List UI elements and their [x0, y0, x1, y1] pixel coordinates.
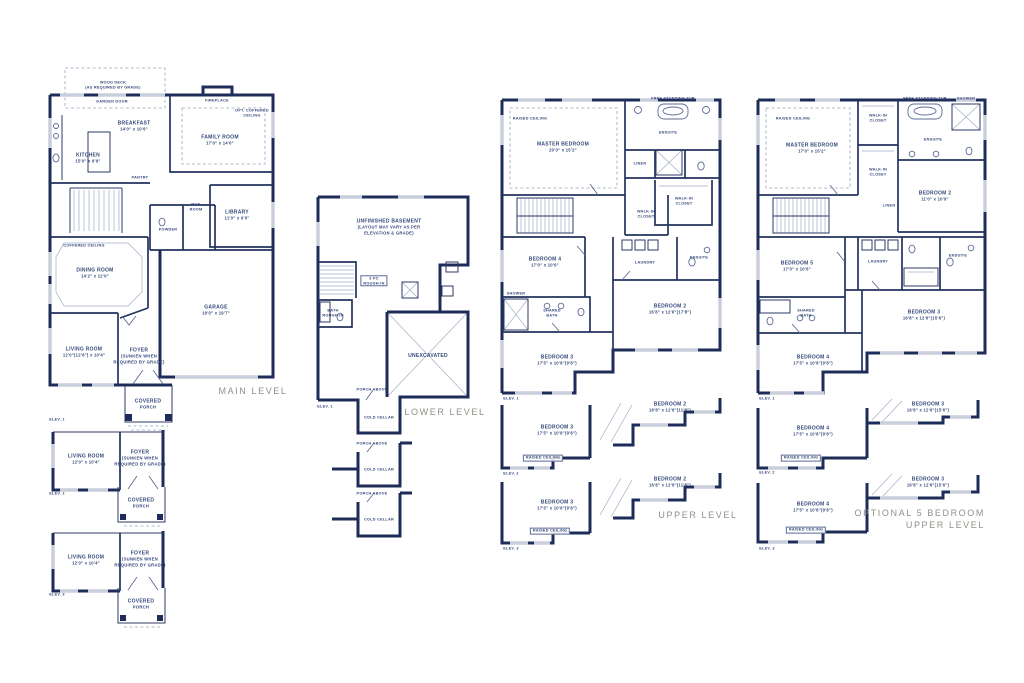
main-alt3-room-covered-porch: COVEREDPORCH — [128, 598, 154, 610]
optional-room-bedroom-3: BEDROOM 316'8" x 12'6"(15'6") — [903, 309, 945, 321]
optional-room-bedroom-5: BEDROOM 517'0" x 10'6" — [781, 260, 814, 272]
optional-level-title: OPTIONAL 5 BEDROOM UPPER LEVEL — [855, 508, 986, 531]
upper-upper-elevation-label-3: ELEV. 3 — [503, 547, 519, 552]
main-fireplace-note: FIREPLACE — [205, 99, 229, 104]
upper-alt2-room-bedroom-2: BEDROOM 216'8" x 12'6"(11'8") — [649, 401, 691, 413]
main-room-library: LIBRARY11'0" x 9'0" — [224, 209, 249, 221]
lower-room-cold-cellar-3: COLD CELLAR — [364, 518, 394, 523]
optional-room-laundry: LAUNDRY — [868, 260, 888, 265]
lower-room-unfinished-basement: UNFINISHED BASEMENT(LAYOUT MAY VARY AS P… — [357, 219, 422, 236]
optional-optional-elevation-label-3: ELEV. 3 — [759, 547, 775, 552]
optional-shower-note: SHOWER — [957, 97, 976, 102]
optional-optional-elevation-label-1: ELEV. 1 — [759, 397, 775, 402]
upper-raised-ceiling-note: RAISED CEILING — [513, 117, 547, 122]
main-room-family: FAMILY ROOM17'0" x 14'0" — [201, 134, 238, 146]
main-room-breakfast: BREAKFAST14'0" x 10'6" — [118, 120, 151, 132]
optional-alt3-raised-ceiling-note: RAISED CEILING — [786, 527, 826, 534]
upper-room-shared-bath: SHAREDBATH — [543, 308, 561, 317]
upper-shower-note: SHOWER — [507, 292, 526, 297]
main-room-living: LIVING ROOM12'0"(12'6") x 10'4" — [63, 346, 105, 358]
optional-room-shared-bath: SHAREDBATH — [797, 308, 815, 317]
upper-room-bedroom-4: BEDROOM 417'0" x 10'6" — [529, 256, 562, 268]
upper-room-bedroom-3: BEDROOM 317'5" x 10'8"(9'8") — [537, 354, 577, 366]
lower-level-title: LOWER LEVEL — [404, 407, 485, 419]
upper-level-title: UPPER LEVEL — [658, 510, 737, 522]
upper-alt3-raised-ceiling-note: RAISED CEILING — [530, 528, 570, 535]
upper-room-walk-in-closet-a: WALK-INCLOSET — [675, 196, 693, 205]
lower-porch-above-note-1: PORCH ABOVE — [357, 388, 388, 393]
optional-room-ensuite: ENSUITE — [924, 138, 942, 143]
upper-alt3-room-bedroom-3: BEDROOM 317'5" x 10'8"(9'8") — [537, 499, 577, 511]
lower-lower-elevation-label-1: ELEV. 1 — [317, 405, 333, 410]
lower-room-cold-cellar-2: COLD CELLAR — [364, 468, 394, 473]
optional-room-bedroom-4: BEDROOM 417'5" x 10'8"(9'8") — [793, 354, 833, 366]
optional-linen-note: LINEN — [883, 204, 896, 209]
optional-room-walk-in-closet-a: WALK-INCLOSET — [869, 113, 887, 122]
main-alt3-room-living: LIVING ROOM12'0" x 10'4" — [68, 554, 104, 566]
main-room-powder: POWDER — [159, 228, 178, 233]
upper-free-standing-tub-note: FREE STANDING TUB — [651, 97, 695, 102]
main-room-kitchen: KITCHEN15'0" x 8'9" — [75, 152, 100, 164]
label-layer: WOOD DECK(AS REQUIRED BY GRADE)GARDEN DO… — [0, 0, 1024, 683]
upper-alt2-room-bedroom-3: BEDROOM 317'5" x 10'8"(9'8") — [537, 424, 577, 436]
optional-free-standing-tub-note: FREE STANDING TUB — [903, 97, 947, 102]
optional-alt2-raised-ceiling-note: RAISED CEILING — [781, 455, 821, 462]
main-opt-coffered-ceiling-note: OPT. COFFEREDCEILING — [235, 108, 269, 117]
main-alt2-room-covered-porch: COVEREDPORCH — [128, 497, 154, 509]
upper-upper-elevation-label-2: ELEV. 2 — [503, 472, 519, 477]
lower-porch-above-note-3: PORCH ABOVE — [357, 492, 388, 497]
main-room-pantry: PANTRY — [132, 176, 149, 181]
main-room-dining: DINING ROOM14'2" x 12'0" — [76, 267, 113, 279]
upper-alt3-room-bedroom-2: BEDROOM 216'8" x 12'6"(11'8") — [649, 476, 691, 488]
main-elevation-label-2: ELEV. 2 — [49, 492, 65, 497]
main-wood-deck-note: WOOD DECK(AS REQUIRED BY GRADE) — [85, 80, 140, 89]
main-room-foyer: FOYER(SUNKEN WHENREQUIRED BY GRADE) — [113, 348, 164, 365]
optional-room-master-bedroom: MASTER BEDROOM17'0" x 15'2" — [786, 142, 838, 154]
lower-three-pc-rough-in-note: 3 PCROUGH-IN — [360, 275, 387, 286]
upper-upper-elevation-label-1: ELEV. 1 — [503, 397, 519, 402]
floorplan-sheet: WOOD DECK(AS REQUIRED BY GRADE)GARDEN DO… — [0, 0, 1024, 683]
optional-room-bedroom-2: BEDROOM 211'0" x 10'9" — [919, 190, 952, 202]
optional-room-walk-in-closet-b: WALK-INCLOSET — [869, 167, 887, 176]
main-room-mud: MUDROOM — [190, 202, 203, 211]
main-alt3-room-foyer: FOYER(SUNKEN WHENREQUIRED BY GRADE) — [114, 551, 165, 568]
optional-alt3-room-bedroom-4: BEDROOM 417'5" x 10'8"(9'8") — [793, 501, 833, 513]
upper-room-walk-in-closet-b: WALK-INCLOSET — [637, 209, 655, 218]
main-room-garage: GARAGE19'0" x 19'7" — [202, 304, 230, 316]
upper-alt2-raised-ceiling-note: RAISED CEILING — [523, 455, 563, 462]
upper-linen-note: LINEN — [634, 162, 647, 167]
upper-room-ensuite-2: ENSUITE — [690, 256, 708, 261]
main-garden-door-note: GARDEN DOOR — [96, 100, 128, 105]
optional-raised-ceiling-note: RAISED CEILING — [776, 117, 810, 122]
optional-optional-elevation-label-2: ELEV. 2 — [759, 471, 775, 476]
main-alt2-room-living: LIVING ROOM12'0" x 10'4" — [68, 453, 104, 465]
main-coffered-ceiling-note: COFFERED CEILING — [63, 244, 104, 249]
lower-porch-above-note-2: PORCH ABOVE — [357, 442, 388, 447]
optional-level-title-line2: UPPER LEVEL — [855, 520, 986, 532]
upper-room-ensuite: ENSUITE — [659, 131, 677, 136]
optional-alt2-room-bedroom-3: BEDROOM 316'8" x 12'6"(15'6") — [907, 401, 949, 413]
main-elevation-label-3: ELEV. 3 — [49, 593, 65, 598]
lower-room-cold-cellar-1: COLD CELLAR — [364, 416, 394, 421]
optional-room-ensuite-2: ENSUITE — [949, 254, 967, 259]
optional-level-title-line1: OPTIONAL 5 BEDROOM — [855, 508, 986, 520]
upper-room-master-bedroom: MASTER BEDROOM20'0" x 15'2" — [537, 141, 589, 153]
optional-alt3-room-bedroom-3: BEDROOM 316'8" x 12'6"(15'6") — [907, 476, 949, 488]
upper-room-laundry: LAUNDRY — [635, 261, 655, 266]
main-room-covered-porch: COVEREDPORCH — [135, 398, 161, 410]
upper-room-bedroom-2: BEDROOM 216'8" x 12'6"(17'8") — [649, 303, 691, 315]
main-level-title: MAIN LEVEL — [218, 386, 287, 398]
lower-bath-rough-in-note: BATHROUGH-IN — [322, 308, 343, 317]
main-elevation-label-1: ELEV. 1 — [49, 418, 65, 423]
main-alt2-room-foyer: FOYER(SUNKEN WHENREQUIRED BY GRADE) — [114, 450, 165, 467]
lower-room-unexcavated: UNEXCAVATED — [408, 353, 448, 359]
optional-alt2-room-bedroom-4: BEDROOM 417'5" x 10'8"(9'8") — [793, 425, 833, 437]
